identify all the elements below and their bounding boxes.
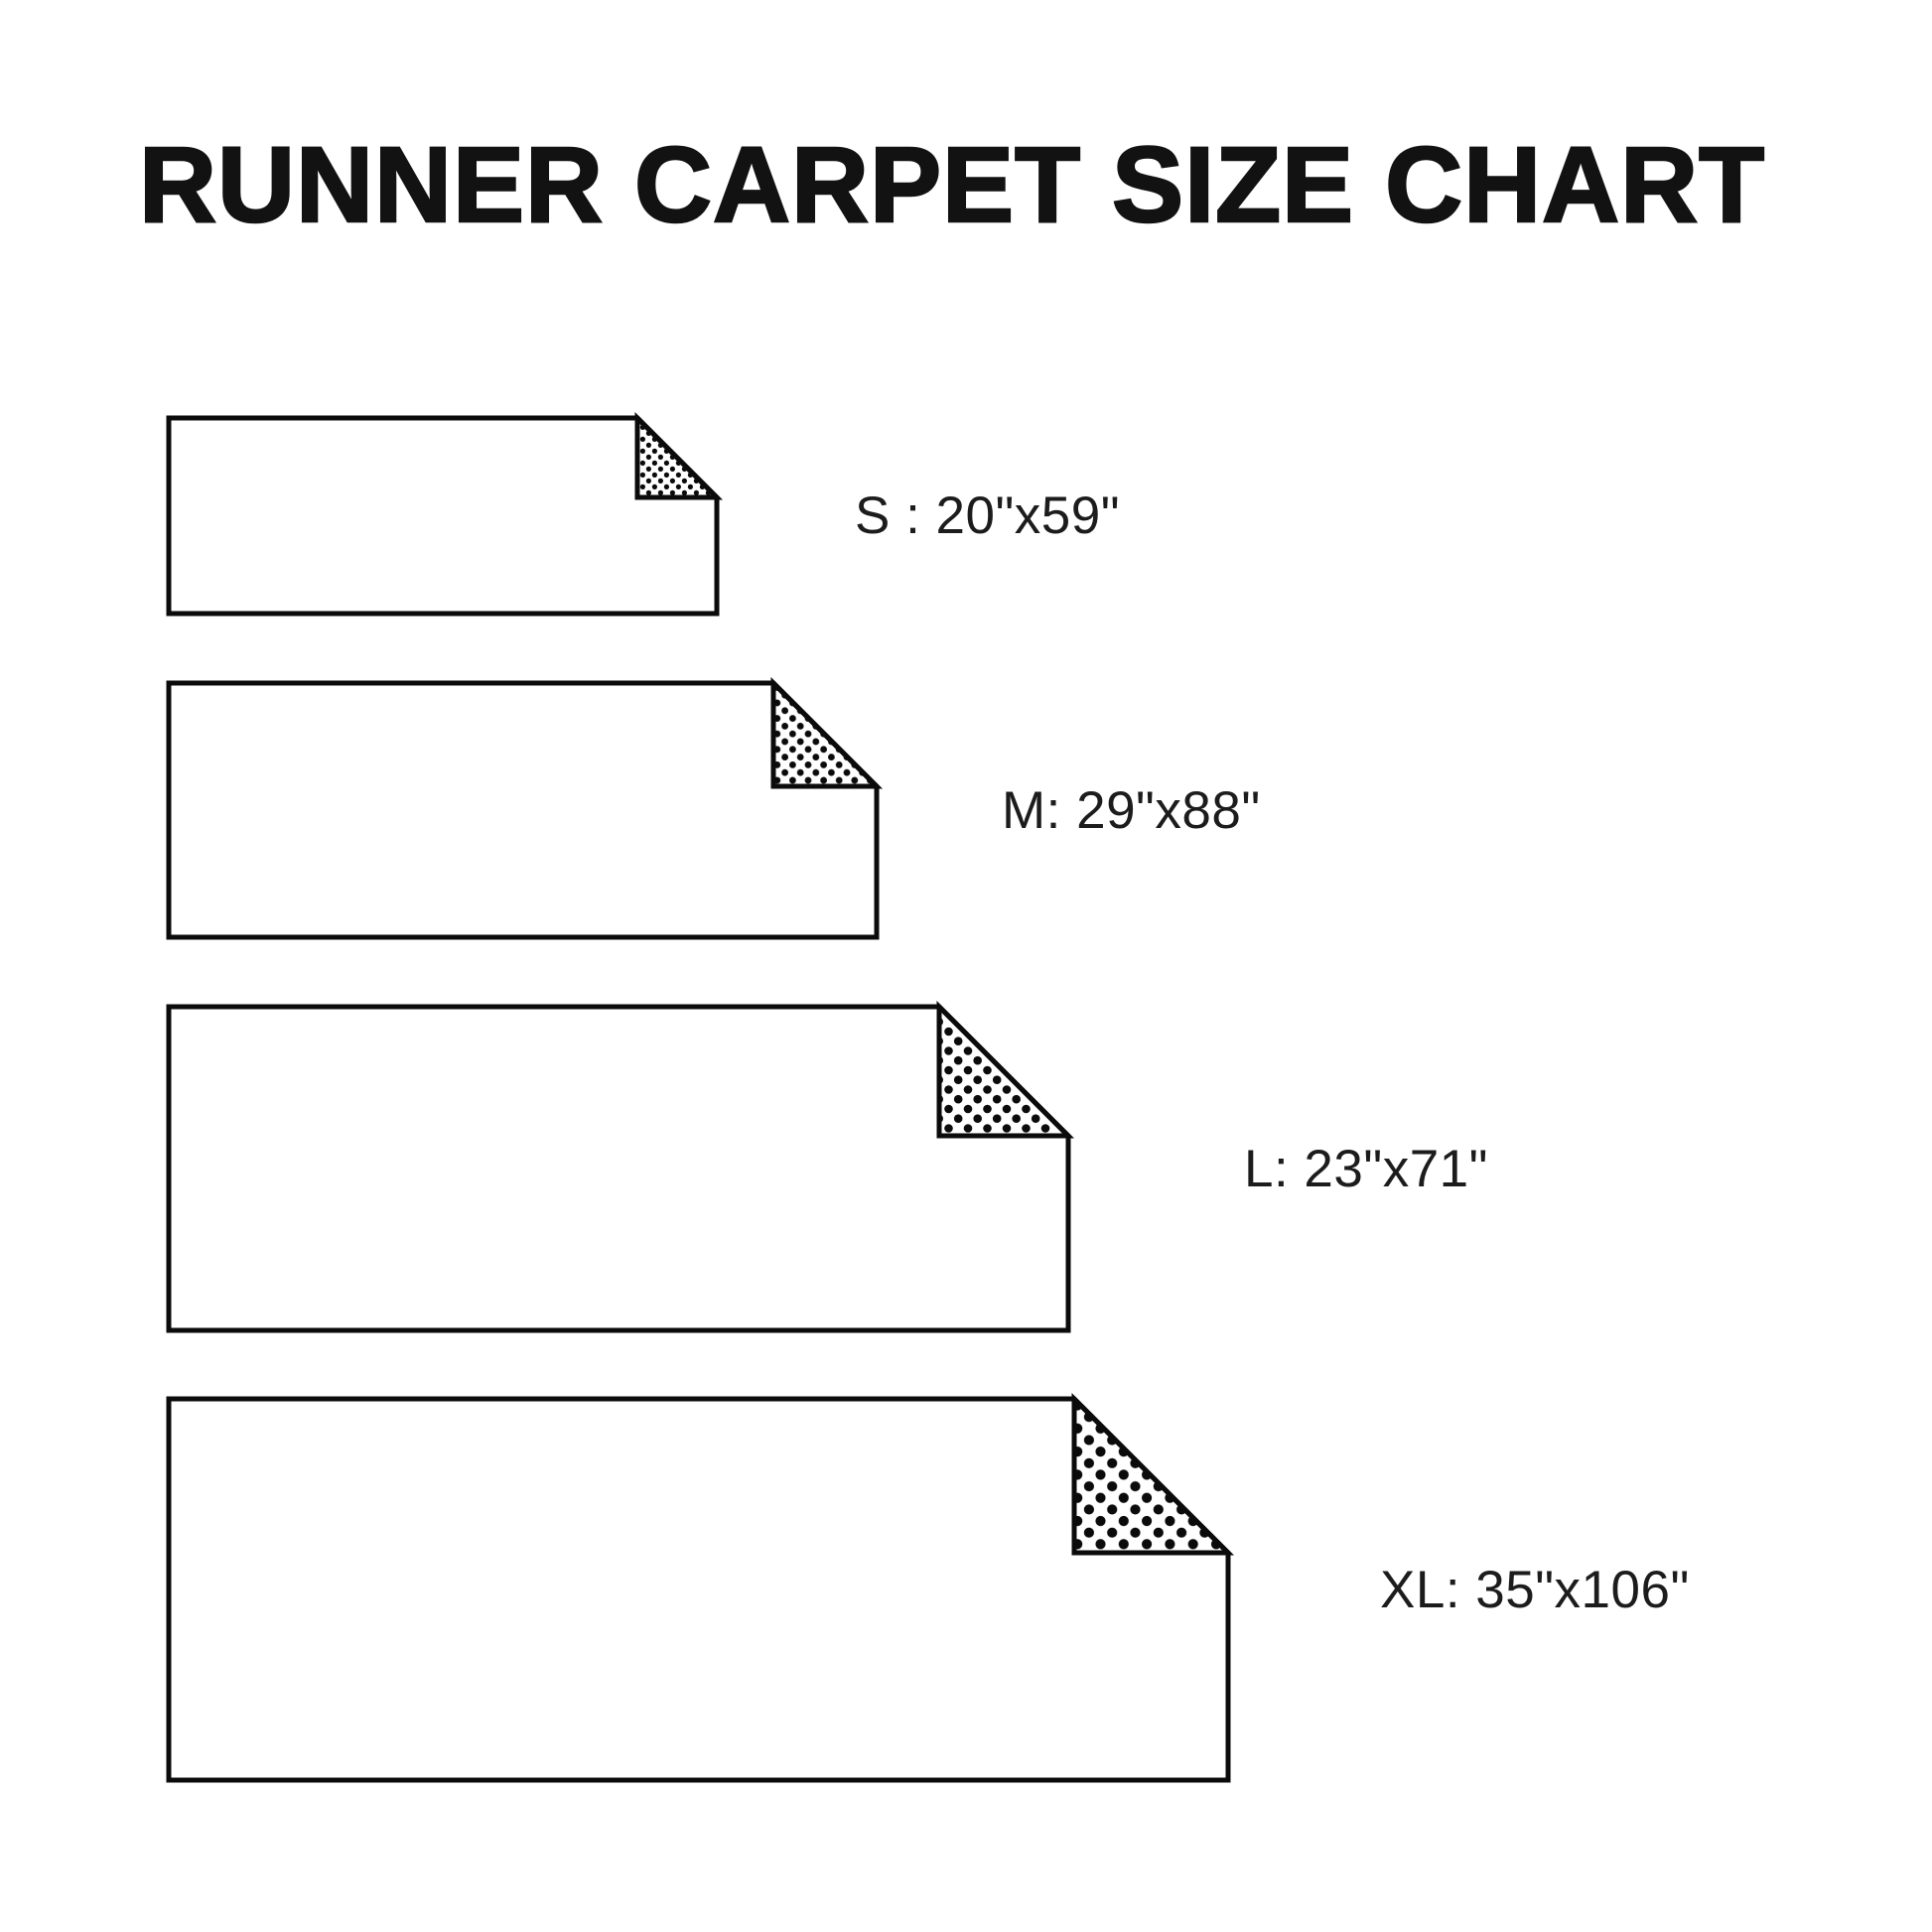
carpet-shape-xl xyxy=(166,1396,1231,1783)
page-title: RUNNER CARPET SIZE CHART xyxy=(139,131,1765,238)
size-label-s: S : 20"x59" xyxy=(855,485,1120,546)
fold-corner-icon xyxy=(637,418,717,497)
fold-corner-icon xyxy=(939,1007,1068,1136)
carpet-row-m: M: 29"x88" xyxy=(166,680,1261,940)
size-label-xl: XL: 35"x106" xyxy=(1380,1560,1690,1620)
carpet-shape-l xyxy=(166,1004,1071,1333)
carpet-row-l: L: 23"x71" xyxy=(166,1004,1488,1333)
carpet-shape-s xyxy=(166,415,720,617)
carpet-outline xyxy=(169,418,717,614)
carpet-shape-m xyxy=(166,680,880,940)
carpet-row-s: S : 20"x59" xyxy=(166,415,1120,617)
carpet-row-xl: XL: 35"x106" xyxy=(166,1396,1690,1783)
fold-corner-icon xyxy=(773,683,877,786)
carpet-outline xyxy=(169,1399,1228,1780)
size-label-m: M: 29"x88" xyxy=(1002,780,1261,841)
carpet-outline xyxy=(169,1007,1068,1330)
size-chart-page: RUNNER CARPET SIZE CHART S : 20"x59"M: 2… xyxy=(0,0,1932,1932)
size-label-l: L: 23"x71" xyxy=(1244,1139,1488,1199)
fold-corner-icon xyxy=(1074,1399,1228,1553)
carpet-outline xyxy=(169,683,877,937)
